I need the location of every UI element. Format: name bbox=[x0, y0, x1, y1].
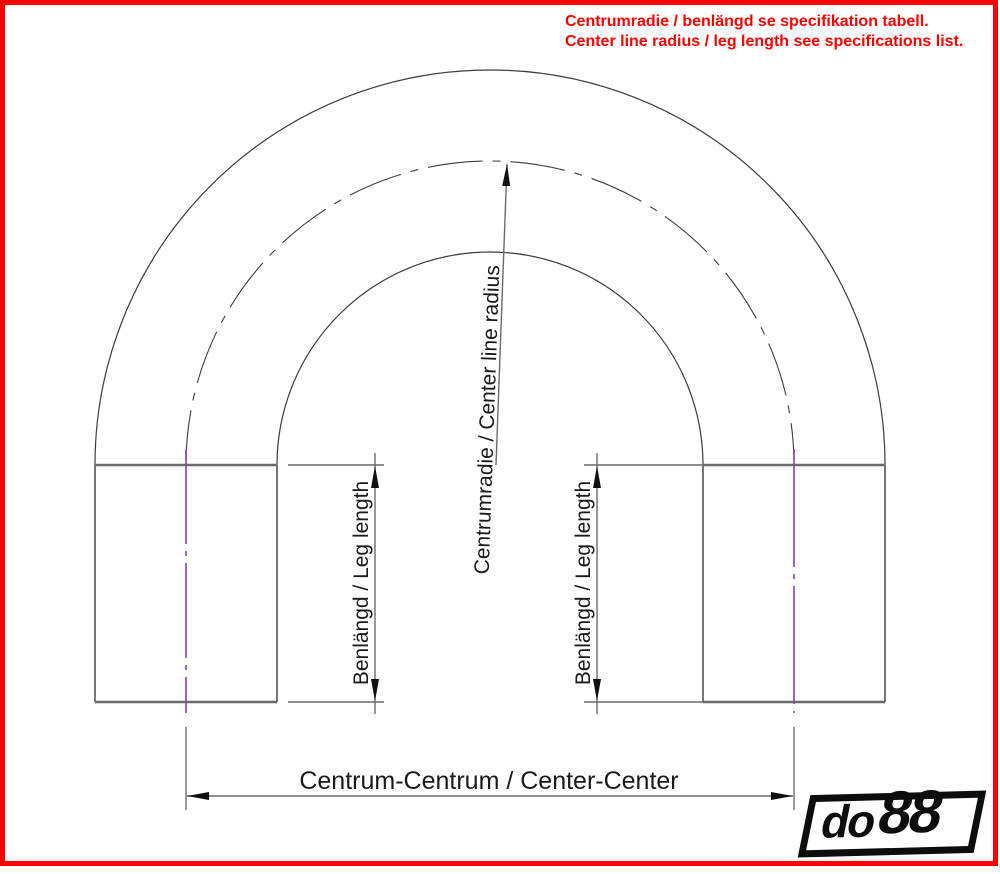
left-leg-dimension: Benlängd / Leg length bbox=[288, 453, 384, 714]
drawing-page: Centrumradie / benlängd se specifikation… bbox=[0, 0, 1000, 874]
center-center-arrow-left-icon bbox=[187, 792, 209, 800]
do88-logo: do 88 bbox=[798, 791, 987, 858]
bend-drawing: Centrumradie / Center line radius Benlän… bbox=[0, 0, 1000, 874]
left-leg-length-label: Benlängd / Leg length bbox=[350, 481, 373, 685]
right-leg-dimension: Benlängd / Leg length bbox=[572, 453, 703, 714]
do88-logo-text-do: do bbox=[817, 797, 879, 845]
do88-logo-text-88: 88 bbox=[873, 782, 946, 844]
radius-arrowhead-icon bbox=[502, 164, 511, 186]
radius-label: Centrumradie / Center line radius bbox=[471, 265, 505, 575]
center-center-label: Centrum-Centrum / Center-Center bbox=[299, 767, 678, 795]
radius-dimension: Centrumradie / Center line radius bbox=[471, 164, 511, 575]
right-leg-length-label: Benlängd / Leg length bbox=[572, 481, 595, 685]
center-center-arrow-right-icon bbox=[771, 792, 793, 800]
center-center-dimension: Centrum-Centrum / Center-Center bbox=[186, 727, 794, 810]
